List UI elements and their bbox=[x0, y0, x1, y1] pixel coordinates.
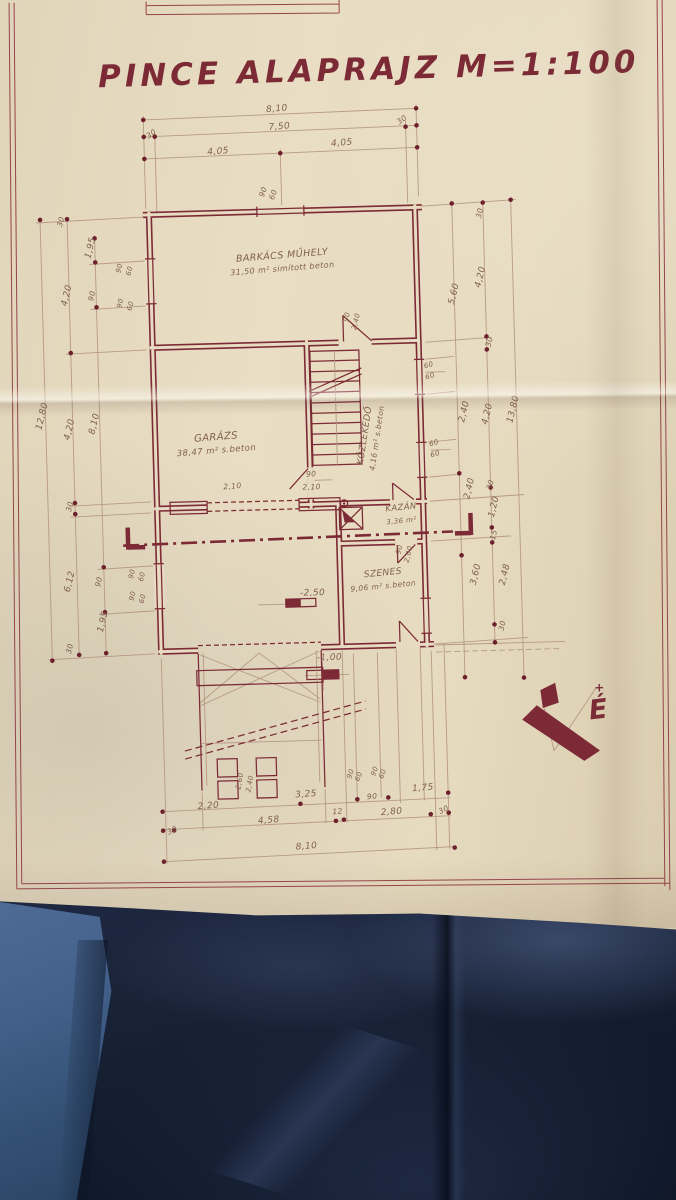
dim-label: 90 bbox=[127, 568, 137, 579]
level-label: -1,00 bbox=[317, 653, 343, 664]
dim-label: 60 bbox=[138, 593, 148, 604]
dim-label: 2,40 bbox=[244, 775, 255, 793]
dim-label: 90 bbox=[342, 311, 352, 322]
room-area-label: 3,36 m² bbox=[386, 515, 417, 526]
dim-label: 5,60 bbox=[447, 282, 462, 305]
dim-label: 60 bbox=[423, 360, 435, 370]
dim-label: 90 bbox=[93, 576, 104, 588]
dim-label: 30 bbox=[55, 216, 66, 228]
dim-label: 1,95 bbox=[96, 610, 111, 633]
north-arrow-flag bbox=[540, 683, 559, 708]
dim-label: 90 bbox=[128, 590, 138, 601]
dim-label: 60 bbox=[377, 768, 388, 780]
dim-label: 60 bbox=[429, 449, 441, 459]
dim-label: 2,60 bbox=[234, 772, 245, 790]
dim-label: 60 bbox=[428, 438, 440, 448]
dim-label: 90 bbox=[394, 544, 404, 555]
room-label: SZENES bbox=[363, 567, 402, 581]
dim-label: 30 bbox=[485, 479, 496, 491]
dim-label: 90 bbox=[114, 262, 124, 273]
dimension-lines bbox=[33, 102, 534, 867]
dim-label: 2,40 bbox=[462, 477, 477, 500]
dim-label: 1,95 bbox=[84, 236, 99, 259]
garage-door-band bbox=[197, 667, 323, 686]
dim-label: 1,75 bbox=[412, 783, 434, 795]
dim-label: 30 bbox=[497, 619, 508, 631]
dim-label: 90 bbox=[86, 290, 97, 302]
dim-label: 4,20 bbox=[60, 284, 75, 307]
ramp-dashed-lines bbox=[184, 701, 367, 759]
dim-label: 2,10 bbox=[302, 482, 321, 492]
level-label: -2,50 bbox=[300, 588, 326, 599]
dim-label: 30 bbox=[64, 500, 75, 512]
dim-label: 4,20 bbox=[474, 265, 489, 288]
dim-label: 4,05 bbox=[331, 138, 353, 150]
column bbox=[257, 780, 277, 799]
drawing-title: PINCE ALAPRAJZ M=1:100 bbox=[98, 44, 640, 95]
dim-label: 60 bbox=[267, 188, 279, 201]
garage-ramp bbox=[182, 649, 368, 800]
room-area-label: 38,47 m² s.beton bbox=[176, 443, 256, 459]
dim-label: 30 bbox=[484, 336, 495, 348]
dim-label: 30 bbox=[395, 113, 409, 126]
dim-label: 8,10 bbox=[266, 103, 288, 115]
level-symbol-basement bbox=[258, 598, 316, 608]
dim-label: 90 bbox=[367, 791, 378, 801]
dim-label: 60 bbox=[424, 371, 436, 381]
floor-plan-svg: 8,10307,50304,054,059060301,954,20909060… bbox=[0, 0, 676, 936]
dim-label: 3,60 bbox=[469, 563, 484, 586]
dim-label: 7,50 bbox=[268, 121, 290, 133]
floor-plan-drawing: 8,10307,50304,054,059060301,954,20909060… bbox=[24, 44, 661, 867]
dimension-ticks bbox=[35, 103, 531, 867]
dim-label: 2,40 bbox=[350, 312, 362, 331]
paper-fold-vertical bbox=[586, 0, 646, 930]
dim-label: 2,00 bbox=[403, 545, 415, 564]
dim-label: 3,25 bbox=[295, 789, 317, 801]
dim-label: 12 bbox=[332, 806, 343, 816]
dim-label: 60 bbox=[125, 265, 135, 276]
dim-label: 2,20 bbox=[197, 801, 219, 813]
dim-label: 60 bbox=[353, 771, 364, 783]
room-label: GARÁZS bbox=[194, 428, 239, 445]
dim-label: 2,80 bbox=[380, 806, 402, 818]
dim-label: 30 bbox=[64, 643, 75, 655]
dim-label: 4,05 bbox=[207, 146, 229, 158]
dim-label: 4,58 bbox=[258, 815, 280, 827]
blueprint-paper: 8,10307,50304,054,059060301,954,20909060… bbox=[0, 0, 676, 936]
column bbox=[256, 758, 276, 777]
dim-label: 60 bbox=[137, 571, 147, 582]
dim-label: 1,20 bbox=[487, 495, 502, 518]
sheet-border-frame bbox=[9, 0, 670, 896]
column bbox=[217, 759, 237, 778]
photo-scene: 8,10307,50304,054,059060301,954,20909060… bbox=[0, 0, 676, 1200]
dim-label: 8,10 bbox=[295, 841, 317, 853]
dim-label: 90 bbox=[306, 469, 317, 478]
dim-label: 2,48 bbox=[498, 563, 513, 586]
dim-label: 2,10 bbox=[223, 481, 242, 491]
dim-label: 6,12 bbox=[63, 570, 78, 593]
dim-label: 60 bbox=[126, 300, 136, 311]
room-area-label: 9,06 m² s.beton bbox=[350, 578, 416, 593]
dim-label: 30 bbox=[165, 824, 178, 837]
dim-label: 15 bbox=[488, 529, 499, 541]
dim-label: 4,20 bbox=[63, 418, 78, 441]
